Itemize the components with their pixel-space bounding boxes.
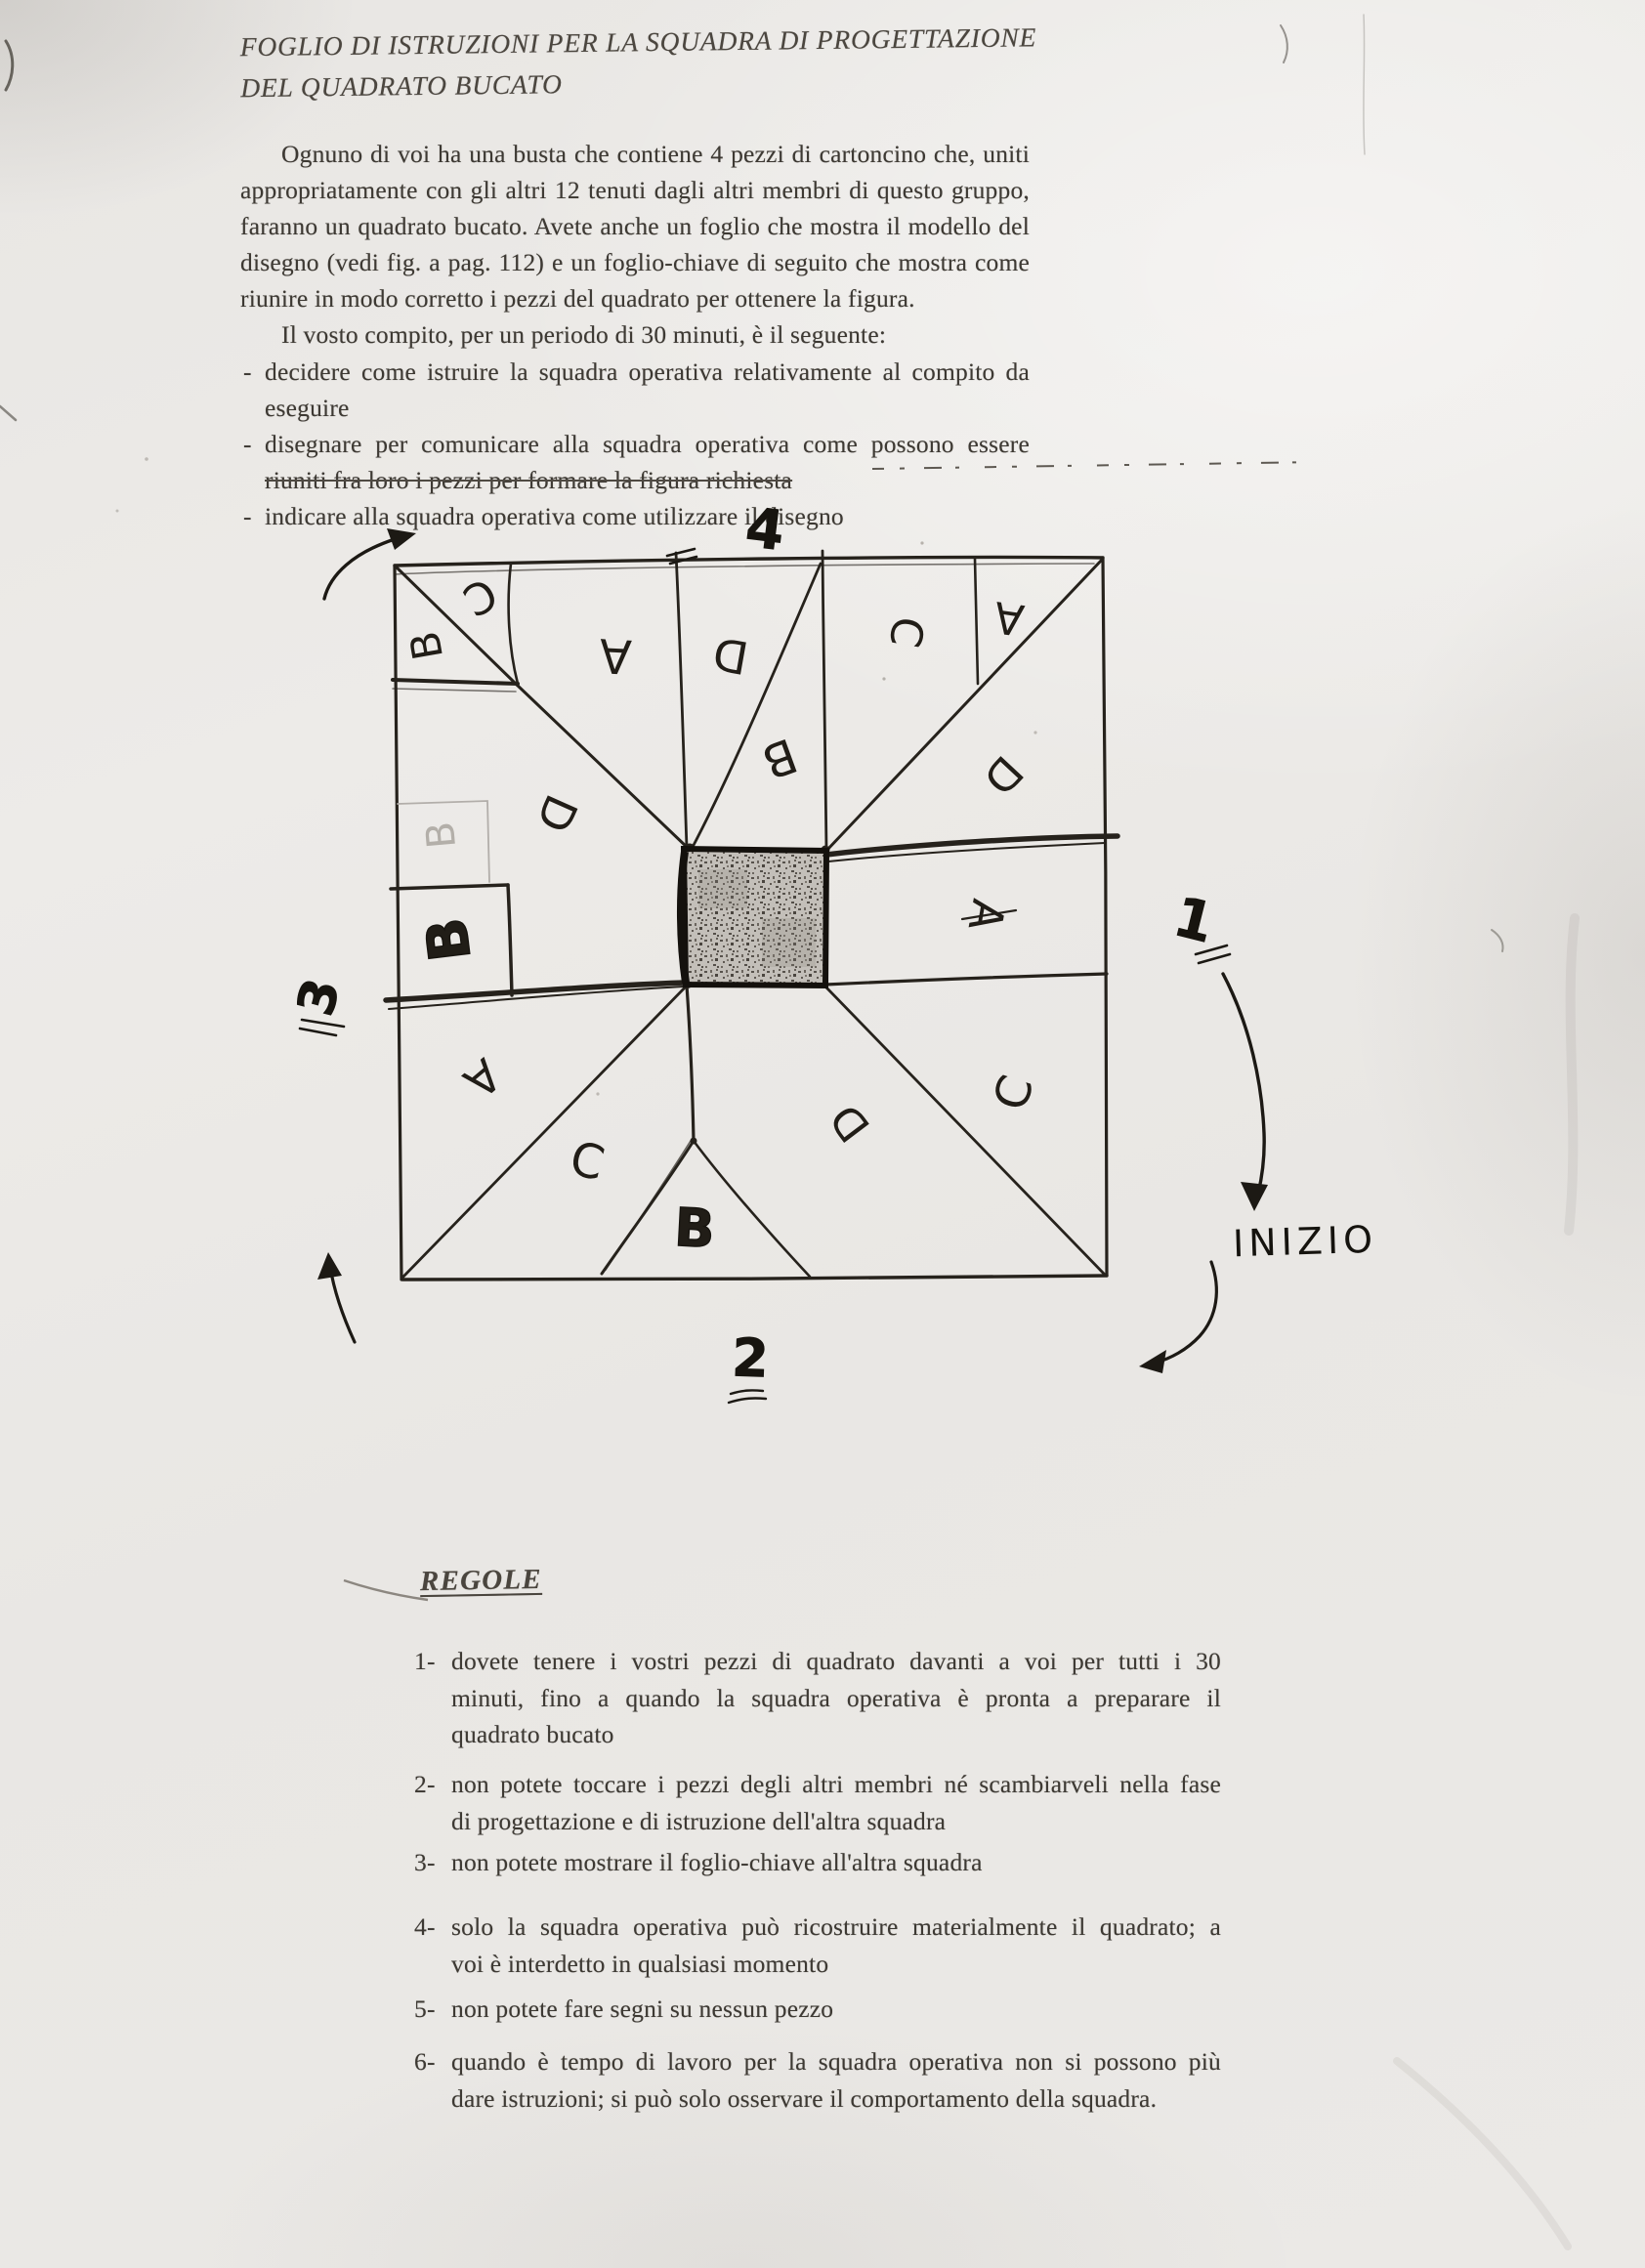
rule-text: dovete tenere i vostri pezzi di quadrato… [451,1643,1221,1753]
rule-line: di progettazione e di istruzione dell'al… [451,1803,1221,1840]
piece-letter: D [823,1096,878,1149]
paragraph-line: Ognuno di voi ha una busta che contiene … [240,136,1030,172]
rule-item: 2- non potete toccare i pezzi degli altr… [414,1766,1225,1839]
bullet-line: eseguire [265,390,1030,426]
side-number-right: 1 [1168,890,1218,952]
rule-text: quando è tempo di lavoro per la squadra … [451,2043,1221,2117]
piece-letter: A [598,631,632,680]
rule-number: 3- [414,1844,436,1881]
piece-letter: B [418,915,480,965]
rule-line: non potete toccare i pezzi degli altri m… [451,1766,1221,1803]
rule-number: 4- [414,1909,436,1946]
rule-line: solo la squadra operativa può ricostruir… [451,1909,1221,1946]
bullet-dash: - [243,354,252,390]
rule-line: dare istruzioni; si può solo osservare i… [451,2080,1221,2118]
rule-text: non potete toccare i pezzi degli altri m… [451,1766,1221,1839]
arrow-right-inizio [1223,974,1268,1211]
piece-letter: D [710,630,752,680]
rule-text: solo la squadra operativa può ricostruir… [451,1909,1221,1982]
bullet-line: decidere come istruire la squadra operat… [265,354,1030,390]
piece-letter: A [962,897,1012,935]
rule-line: non potete mostrare il foglio-chiave all… [451,1844,1221,1881]
scanned-instruction-sheet: FOGLIO DI ISTRUZIONI PER LA SQUADRA DI P… [0,0,1645,2268]
rule-item: 5- non potete fare segni su nessun pezzo [414,1991,1225,2028]
rule-number: 1- [414,1643,436,1680]
number-underline-marks [300,549,1230,1403]
bullet-dash: - [243,498,252,534]
paragraph-line: disegno (vedi fig. a pag. 112) e un fogl… [240,244,1030,280]
piece-letter: C [987,1071,1041,1116]
rule-item: 1- dovete tenere i vostri pezzi di quadr… [414,1643,1225,1753]
regole-swash [344,1580,428,1600]
task-intro-line: Il vosto compito, per un periodo di 30 m… [240,316,1030,353]
bullet-dash: - [243,426,252,462]
intro-paragraph: Ognuno di voi ha una busta che contiene … [240,136,1030,316]
side-number-left: 3 [290,974,349,1021]
side-number-bottom: 2 [731,1331,769,1385]
side-number-top: 4 [742,501,787,560]
rule-item: 4- solo la squadra operativa può ricostr… [414,1909,1225,1982]
rule-line: quando è tempo di lavoro per la squadra … [451,2043,1221,2080]
rule-number: 2- [414,1766,436,1803]
piece-letter: B [673,1201,716,1256]
bullet-line-struck: riuniti fra loro i pezzi per formare la … [265,462,1030,498]
intro-section: Ognuno di voi ha una busta che contiene … [240,136,1030,534]
rule-item: 3- non potete mostrare il foglio-chiave … [414,1844,1225,1881]
rule-line: non potete fare segni su nessun pezzo [451,1991,1221,2028]
bullet-item: - decidere come istruire la squadra oper… [240,354,1030,426]
rule-line: voi è interdetto in qualsiasi momento [451,1946,1221,1983]
piece-letter: D [975,748,1029,802]
piece-letter: A [456,1051,509,1105]
piece-letter: C [456,569,504,621]
inizio-start-label: INIZIO [1232,1221,1377,1263]
rule-text: non potete fare segni su nessun pezzo [451,1991,1221,2028]
piece-letter: C [882,613,930,651]
rule-line: quadrato bucato [451,1716,1221,1753]
rule-line: minuti, fino a quando la squadra operati… [451,1680,1221,1717]
rule-line: dovete tenere i vostri pezzi di quadrato… [451,1643,1221,1680]
arrow-bottom-left [317,1252,355,1342]
rule-text: non potete mostrare il foglio-chiave all… [451,1844,1221,1881]
task-bullet-list: - decidere come istruire la squadra oper… [240,354,1030,534]
paragraph-line: faranno un quadrato bucato. Avete anche … [240,208,1030,244]
piece-letter: B [756,731,802,785]
piece-letter: B [404,628,449,663]
arrow-inizio-down-left [1139,1262,1216,1373]
rule-number: 6- [414,2043,436,2080]
piece-letter: A [991,594,1027,641]
rules-heading: REGOLE [420,1564,542,1598]
document-title: FOGLIO DI ISTRUZIONI PER LA SQUADRA DI P… [240,17,1081,109]
bullet-line: disegnare per comunicare alla squadra op… [265,426,1030,462]
bullet-item: - indicare alla squadra operativa come u… [240,498,1030,534]
piece-letter-pencil: B [421,820,462,851]
diagram-center-hole [681,849,826,986]
rule-item: 6- quando è tempo di lavoro per la squad… [414,2043,1225,2117]
paragraph-line: appropriatamente con gli altri 12 tenuti… [240,172,1030,208]
rule-number: 5- [414,1991,436,2028]
piece-letter: C [566,1135,609,1189]
piece-letter: D [529,788,584,838]
bullet-item: - disegnare per comunicare alla squadra … [240,426,1030,498]
bullet-line: indicare alla squadra operativa come uti… [265,498,1030,534]
arrow-top-left [324,528,416,599]
paragraph-line: riunire in modo corretto i pezzi del qua… [240,280,1030,316]
